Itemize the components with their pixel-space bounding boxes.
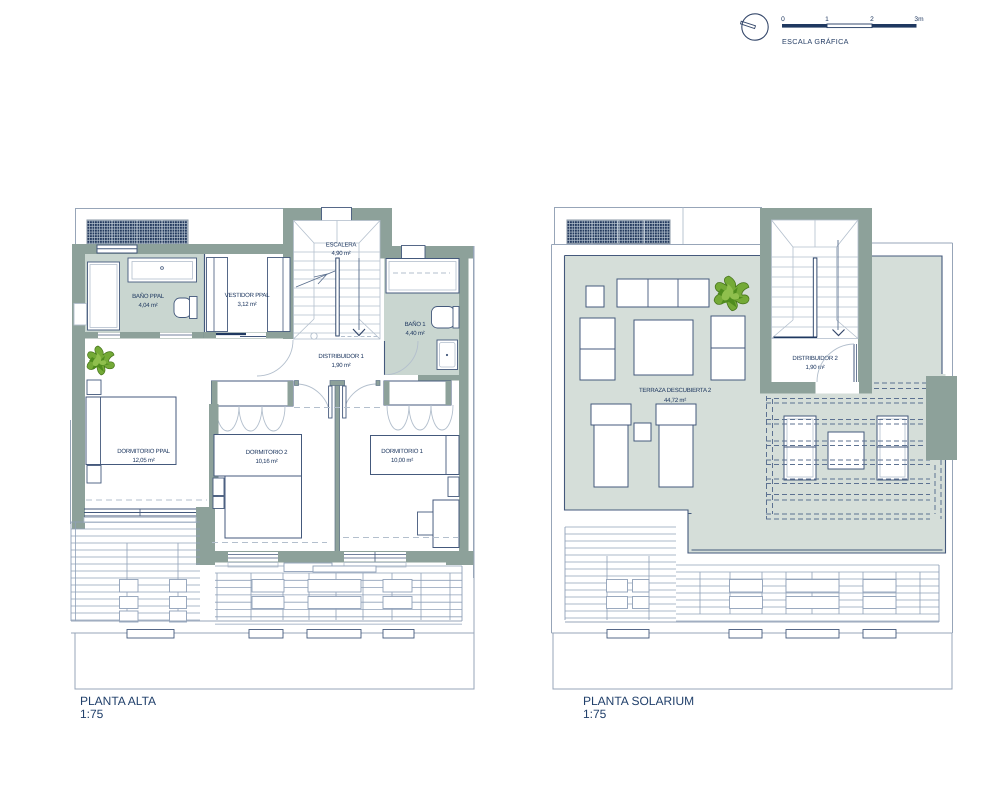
svg-text:TERRAZA DESCUBIERTA 2: TERRAZA DESCUBIERTA 2	[639, 387, 712, 394]
svg-text:1,90 m²: 1,90 m²	[332, 362, 351, 369]
svg-text:0: 0	[781, 16, 785, 23]
svg-text:12,05 m²: 12,05 m²	[132, 457, 154, 464]
svg-text:2: 2	[870, 16, 874, 23]
svg-text:DORMITORIO 1: DORMITORIO 1	[381, 448, 423, 455]
svg-text:PLANTA SOLARIUM: PLANTA SOLARIUM	[583, 694, 694, 708]
svg-text:44,72 m²: 44,72 m²	[664, 397, 686, 404]
svg-text:BAÑO 1: BAÑO 1	[405, 320, 427, 328]
svg-text:ESCALERA: ESCALERA	[326, 242, 358, 249]
svg-text:DORMITORIO PPAL: DORMITORIO PPAL	[117, 448, 170, 455]
svg-text:10,16 m²: 10,16 m²	[255, 458, 277, 465]
svg-text:4,04 m²: 4,04 m²	[139, 302, 158, 309]
svg-text:4,90 m²: 4,90 m²	[332, 250, 351, 257]
svg-text:ESCALA GRÁFICA: ESCALA GRÁFICA	[782, 37, 849, 46]
svg-text:1: 1	[825, 16, 829, 23]
svg-text:4,40 m²: 4,40 m²	[406, 330, 425, 337]
svg-text:1:75: 1:75	[583, 707, 607, 721]
svg-text:DISTRIBUIDOR 1: DISTRIBUIDOR 1	[318, 353, 364, 360]
svg-text:1:75: 1:75	[80, 707, 104, 721]
svg-text:1,90 m²: 1,90 m²	[806, 364, 825, 371]
svg-text:DISTRIBUIDOR 2: DISTRIBUIDOR 2	[792, 355, 838, 362]
svg-text:PLANTA ALTA: PLANTA ALTA	[80, 694, 156, 708]
svg-text:3,12 m²: 3,12 m²	[238, 301, 257, 308]
svg-text:3m: 3m	[914, 16, 924, 23]
svg-text:BAÑO PPAL: BAÑO PPAL	[132, 292, 165, 300]
svg-text:VESTIDOR PPAL: VESTIDOR PPAL	[225, 292, 271, 299]
svg-text:DORMITORIO 2: DORMITORIO 2	[246, 449, 288, 456]
svg-text:10,00 m²: 10,00 m²	[391, 457, 413, 464]
